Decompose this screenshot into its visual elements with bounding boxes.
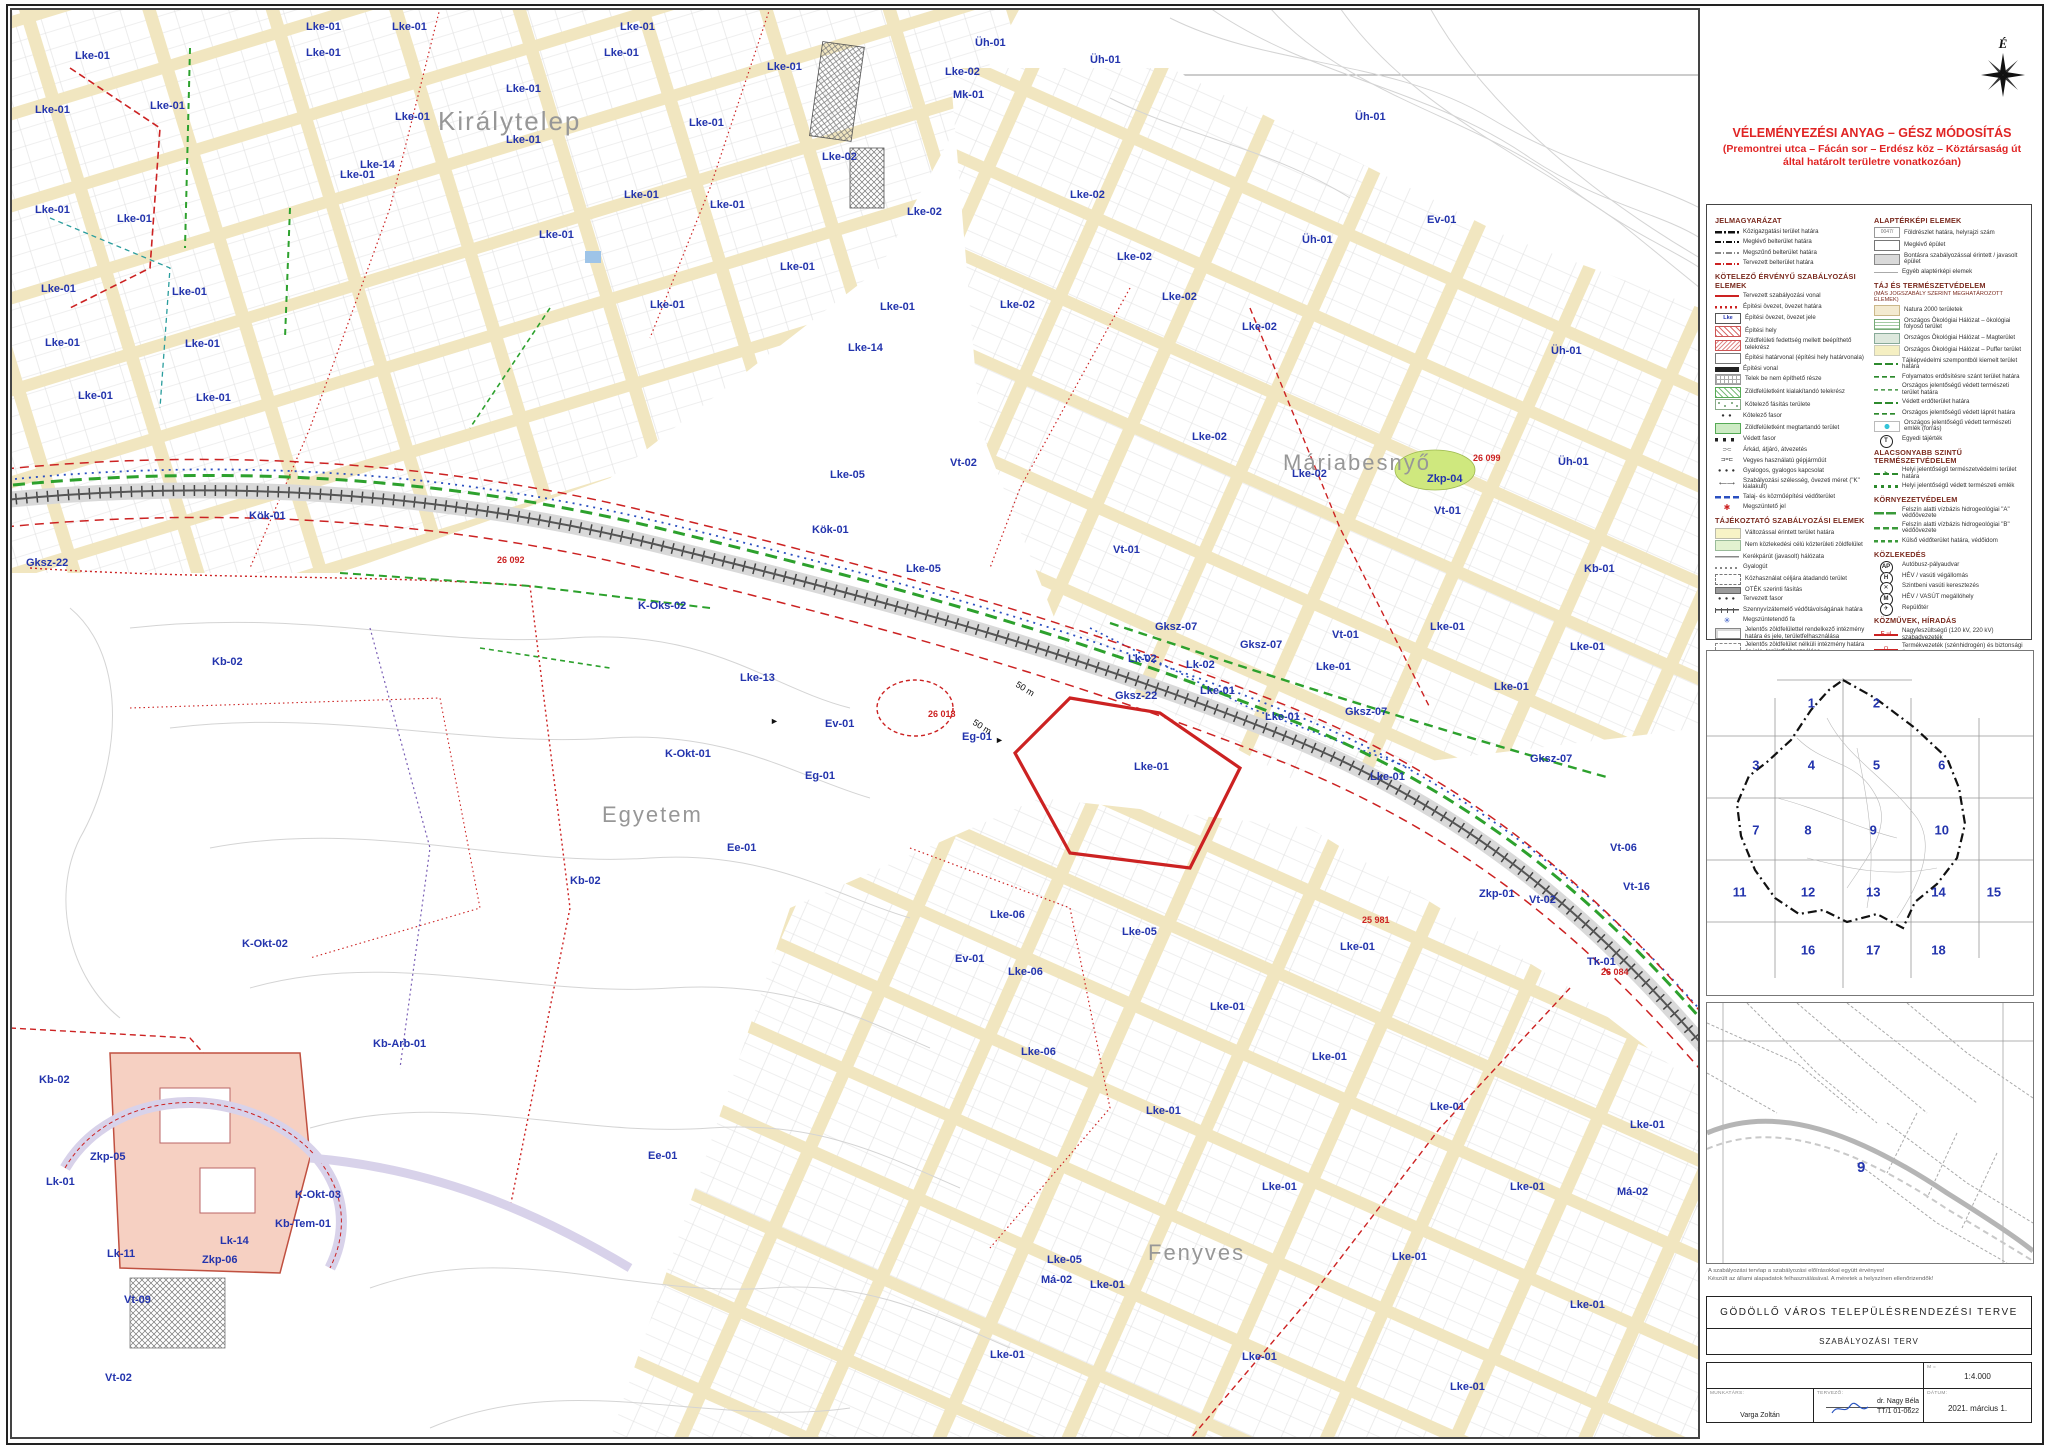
legend-swatch-icon (1874, 360, 1898, 369)
legend-item: ⟵⟶Szabályozási szélesség, övezeti méret … (1715, 478, 1866, 491)
legend-swatch-icon (1715, 292, 1739, 301)
legend-item-label: Meglévő belterület határa (1743, 239, 1812, 246)
legend-item: MHÉV / VASÚT megállóhely (1874, 593, 2025, 602)
zone-code-label: Gksz-07 (1530, 753, 1572, 765)
legend-item: Jelentős zöldfelülettel rendelkező intéz… (1715, 627, 1866, 640)
legend-item: Egyéb alaptérképi elemek (1874, 268, 2025, 277)
legend-item-label: Felszín alatti vízbázis hidrogeológiai "… (1902, 507, 2025, 520)
sheet-number-9: 9 (1870, 822, 1877, 837)
legend-swatch-icon (1715, 606, 1739, 615)
sheet-number-17: 17 (1866, 943, 1880, 958)
title-block: GÖDÖLLŐ VÁROS TELEPÜLÉSRENDEZÉSI TERVE S… (1706, 1296, 2032, 1423)
zone-code-label: Lke-02 (1292, 468, 1327, 480)
legend-swatch-icon: ● ● ● (1715, 595, 1739, 604)
zone-code-label: Lke-01 (78, 390, 113, 402)
scale-value: 1:4.000 (1928, 1372, 2027, 1381)
zone-code-label: Lke-01 (624, 189, 659, 201)
zone-code-label: Ev-01 (955, 953, 984, 965)
legend-item-label: HÉV / vasúti végállomás (1902, 573, 1968, 580)
zone-code-label: Üh-01 (975, 36, 1006, 49)
legend-swatch-icon (1874, 421, 1900, 432)
legend-swatch-icon (1715, 399, 1741, 410)
legend-swatch-icon (1715, 227, 1739, 236)
zone-code-label: Eg-01 (805, 770, 835, 782)
legend-section-title: KÖZLEKEDÉS (1874, 551, 2025, 559)
legend-item: ⊐=⊏Vegyes használatú gépjárműút (1715, 456, 1866, 465)
zone-code-label: Lke-13 (740, 672, 775, 684)
zone-code-label: Lke-05 (1122, 926, 1157, 938)
zone-code-label: Mk-01 (953, 89, 984, 101)
zone-code-label: Lke-06 (990, 909, 1025, 921)
zone-code-label: Kb-Arb-01 (373, 1038, 426, 1050)
zone-code-label: Lke-01 (506, 134, 541, 146)
legend-item-label: OTÉK szerinti fásítás (1745, 587, 1802, 594)
zone-code-label: Zkp-01 (1479, 888, 1514, 900)
zone-code-label: Gksz-07 (1240, 639, 1282, 651)
legend-item-label: Tervezett fasor (1743, 596, 1783, 603)
map-notes: A szabályozási tervlap a szabályozási el… (1708, 1268, 2030, 1284)
legend-section-subtitle: (MÁS JOGSZABÁLY SZERINT MEGHATÁROZOTT EL… (1874, 291, 2025, 303)
legend-item-label: Tervezett belterület határa (1743, 260, 1813, 267)
legend-item-label: Gyalogút (1743, 564, 1767, 571)
legend-item-label: Folyamatos erdősítésre szánt terület hat… (1902, 374, 2020, 381)
legend-swatch-icon: ⊐=⊏ (1715, 456, 1739, 465)
legend-swatch-icon (1874, 482, 1898, 491)
legend-item-label: Tervezett szabályozási vonal (1743, 293, 1821, 300)
signature-icon (1830, 1401, 1870, 1417)
zone-code-label: Kök-01 (249, 510, 286, 522)
legend-item: LkeÉpítési övezet, övezet jele (1715, 313, 1866, 324)
zone-code-label: Vt-01 (1434, 505, 1461, 517)
legend-item: ● ● ●Tervezett fasor (1715, 595, 1866, 604)
legend-item-label: Országos Ökológiai Hálózat – Magterület (1904, 335, 2015, 342)
legend-item: Országos Ökológiai Hálózat – Puffer terü… (1874, 345, 2025, 356)
legend-swatch-icon (1874, 386, 1898, 395)
legend-swatch-icon (1874, 268, 1898, 277)
legend-item-label: Szennyvízátemelő védőtávolságának határa (1743, 607, 1863, 614)
legend-item-label: Kötelező fasor (1743, 413, 1782, 420)
zone-code-label: Lke-14 (360, 159, 396, 171)
legend-swatch-icon (1715, 423, 1741, 434)
legend-item-label: Országos jelentőségű védett természeti e… (1904, 420, 2025, 433)
sheet-number-1: 1 (1808, 695, 1815, 710)
zone-code-label: Lke-01 (1210, 1001, 1245, 1013)
zone-code-label: Lke-01 (506, 83, 541, 95)
zone-code-label: Lke-02 (1000, 299, 1035, 311)
zone-code-label: Ev-01 (1427, 214, 1456, 226)
legend-item: Bontásra szabályozással érintett / javas… (1874, 253, 2025, 266)
legend-item: Kerékpárút (javasolt) hálózata (1715, 553, 1866, 562)
legend-swatch-icon (1715, 574, 1741, 585)
sheet-number-7: 7 (1752, 822, 1759, 837)
zone-code-label: Lk-02 (1128, 653, 1157, 665)
legend-item: Változással érintett terület határa (1715, 528, 1866, 539)
legend-swatch-icon (1874, 409, 1898, 418)
zone-code-label: Zkp-05 (90, 1151, 125, 1163)
legend-item: Szennyvízátemelő védőtávolságának határa (1715, 606, 1866, 615)
legend-swatch-icon (1715, 367, 1739, 372)
place-name-label: Királytelep (438, 106, 581, 136)
legend-swatch-icon (1874, 398, 1898, 407)
sheet9-key-map: 9 (1706, 1002, 2034, 1264)
zone-code-label: Kök-01 (812, 524, 849, 536)
contributor-name: Varga Zoltán (1711, 1412, 1809, 1419)
sheet-number-12: 12 (1801, 884, 1815, 899)
zone-code-label: Gksz-07 (1155, 621, 1197, 633)
legend-item: Tervezett belterület határa (1715, 259, 1866, 268)
sheet-index-map: 123456789101112131415161718 (1706, 650, 2034, 996)
legend-item: Országos Ökológiai Hálózat – Magterület (1874, 333, 2025, 344)
sheet-number-13: 13 (1866, 884, 1880, 899)
zone-code-label: Má-02 (1617, 1186, 1648, 1198)
zone-code-label: Lke-01 (689, 117, 724, 129)
legend-item-label: Autóbusz-pályaudvar (1902, 562, 1959, 569)
legend-item-label: Telek be nem építhető része (1745, 376, 1822, 383)
zone-code-label: Lke-01 (1430, 621, 1465, 633)
zone-code-label: Lke-01 (1570, 641, 1605, 653)
zone-code-label: Lke-01 (767, 61, 802, 73)
legend-item-label: Változással érintett terület határa (1745, 530, 1834, 537)
legend-swatch-icon: ✳ (1715, 616, 1739, 625)
legend-item: Védett fasor (1715, 435, 1866, 444)
zone-code-label: Lke-05 (906, 563, 941, 575)
annotation-label: ► (770, 716, 779, 726)
zone-code-label: Lk-01 (46, 1176, 75, 1188)
zone-code-label: Lke-01 (1242, 1351, 1277, 1363)
sheet-number-15: 15 (1987, 884, 2001, 899)
legend-item: Felszín alatti vízbázis hidrogeológiai "… (1874, 507, 2025, 520)
legend-item-label: Megszüntető jel (1743, 504, 1786, 511)
legend-item-label: Tájképvédelmi szempontból kiemelt terüle… (1902, 358, 2025, 371)
legend-item: Országos jelentőségű védett természeti t… (1874, 383, 2025, 396)
castle-block (110, 1053, 310, 1273)
legend-swatch-icon: ✕ (1874, 582, 1898, 591)
zone-code-label: Ee-01 (648, 1150, 677, 1162)
legend-item-label: Zöldfelületként kialakítandó telekrész (1745, 389, 1845, 396)
scale-cell: M = 1:4.000 (1924, 1363, 2031, 1389)
legend-swatch-icon: ● ● ● (1715, 467, 1739, 476)
plan-sheet: { "title": { "line1": "VÉLEMÉNYEZÉSI ANY… (0, 0, 2048, 1447)
zone-code-label: K-Okt-02 (242, 938, 288, 950)
legend-swatch-icon (1715, 540, 1741, 551)
place-name-label: Egyetem (602, 802, 703, 827)
legend-item: Védett erdőterület határa (1874, 398, 2025, 407)
zoning-map-canvas: KirálytelepMáriabesnyőEgyetemFenyves Lke… (10, 8, 1700, 1439)
legend-item-label: Kerékpárút (javasolt) hálózata (1743, 554, 1824, 561)
zone-code-label: Lke-01 (1200, 685, 1235, 697)
legend-item: Talaj- és közműépítési védőterület (1715, 493, 1866, 502)
legend-item-label: Országos jelentőségű védett természeti t… (1902, 383, 2025, 396)
legend-swatch-icon (1874, 537, 1898, 546)
legend-swatch-icon (1874, 345, 1900, 356)
sheet-number-16: 16 (1801, 943, 1815, 958)
sheet-number-18: 18 (1931, 943, 1945, 958)
legend-swatch-icon (1874, 305, 1900, 316)
legend-item-label: Építési övezet, övezet jele (1745, 315, 1816, 322)
zone-code-label: Lke-02 (945, 66, 980, 78)
zone-code-label: Lke-01 (117, 213, 152, 225)
legend-item: Telek be nem építhető része (1715, 374, 1866, 385)
zone-code-label: Üh-01 (1302, 233, 1333, 246)
date-cell: DÁTUM: 2021. március 1. (1924, 1389, 2031, 1422)
legend-swatch-icon (1715, 340, 1741, 351)
north-arrow: É (1980, 36, 2026, 103)
legend-item: ✕Szintbeni vasúti keresztezés (1874, 582, 2025, 591)
zone-code-label: Lke-01 (1312, 1051, 1347, 1063)
annotation-label: ► (995, 735, 1004, 745)
legend-item-label: Jelentős zöldfelülettel rendelkező intéz… (1745, 627, 1866, 640)
zone-code-label: K-Okt-01 (665, 748, 711, 760)
legend-item: Natura 2000 területek (1874, 305, 2025, 316)
zone-code-label: Vt-01 (1332, 629, 1359, 641)
legend-item: ✈Repülőtér (1874, 603, 2025, 612)
legend-item-label: Szabályozási szélesség, övezeti méret ("… (1743, 478, 1866, 491)
legend-item: Közhasználat céljára átadandó terület (1715, 574, 1866, 585)
zone-code-label: Lke-01 (1510, 1181, 1545, 1193)
legend-item: ✳Megszüntetendő fa (1715, 616, 1866, 625)
zone-code-label: Kb-02 (212, 656, 243, 668)
legend-item: ⊃⊂Árkád, átjáró, átvezetés (1715, 446, 1866, 455)
zone-code-label: Gksz-22 (1115, 690, 1157, 702)
parcel-number-label: 26 092 (497, 555, 525, 565)
legend-item-label: Országos Ökológiai Hálózat – ökológiai f… (1904, 318, 2025, 331)
legend-item: Gyalogút (1715, 563, 1866, 572)
legend-item: ● ● ●Gyalogos, gyalogos kapcsolat (1715, 467, 1866, 476)
zone-code-label: Lk-14 (220, 1235, 250, 1247)
legend-swatch-icon (1874, 373, 1898, 382)
zone-code-label: Lke-01 (1146, 1105, 1181, 1117)
legend-item: HHÉV / vasúti végállomás (1874, 572, 2025, 581)
legend-swatch-icon (1715, 303, 1739, 312)
zone-code-label: Gksz-07 (1345, 706, 1387, 718)
legend-item-label: Gyalogos, gyalogos kapcsolat (1743, 468, 1824, 475)
legend-item-label: Zöldfelületként megtartandó terület (1745, 425, 1839, 432)
zone-code-label: Ee-01 (727, 842, 756, 854)
zone-code-label: Zkp-06 (202, 1254, 237, 1266)
legend-item: Nem közlekedési célú közterületi zöldfel… (1715, 540, 1866, 551)
legend-item-label: Nem közlekedési célú közterületi zöldfel… (1745, 542, 1863, 549)
zone-code-label: Lke-02 (1162, 291, 1197, 303)
legend-swatch-icon (1715, 374, 1741, 385)
legend-item: ● ●Kötelező fasor (1715, 412, 1866, 421)
legend-swatch-icon (1874, 524, 1898, 533)
legend-item-label: Védett fasor (1743, 436, 1776, 443)
legend: JELMAGYARÁZATKözigazgatási terület határ… (1706, 204, 2032, 640)
zone-code-label: Lke-02 (1242, 321, 1277, 333)
legend-item: Meglévő belterület határa (1715, 238, 1866, 247)
map-note-line1: A szabályozási tervlap a szabályozási el… (1708, 1268, 2030, 1276)
zone-code-label: Zkp-04 (1427, 473, 1463, 485)
title-block-main: GÖDÖLLŐ VÁROS TELEPÜLÉSRENDEZÉSI TERVE (1707, 1297, 2031, 1329)
legend-swatch-icon (1715, 353, 1741, 364)
legend-item-label: Zöldfelületi fedettség mellett beépíthet… (1745, 338, 1866, 351)
legend-item: Felszín alatti vízbázis hidrogeológiai "… (1874, 522, 2025, 535)
legend-swatch-icon: ✈ (1874, 603, 1898, 612)
plan-title-line1: VÉLEMÉNYEZÉSI ANYAG – GÉSZ MÓDOSÍTÁS (1704, 126, 2040, 140)
legend-item: Helyi jelentőségű védett természeti emlé… (1874, 482, 2025, 491)
zone-code-label: Lke-01 (172, 286, 207, 298)
zone-code-label: Lke-01 (1262, 1181, 1297, 1193)
zone-code-label: Lke-01 (1340, 941, 1375, 953)
zone-code-label: Má-02 (1041, 1274, 1072, 1286)
sheet-number-8: 8 (1804, 822, 1811, 837)
zone-code-label: Lke-01 (306, 21, 341, 33)
zone-code-label: Üh-01 (1355, 110, 1386, 123)
legend-swatch-icon (1715, 435, 1739, 444)
pond (585, 251, 601, 263)
legend-column-right: ALAPTÉRKÉPI ELEMEK0047/Földrészlet határ… (1874, 212, 2025, 635)
sheet-number-6: 6 (1938, 757, 1945, 772)
zone-code-label: Lke-01 (539, 229, 574, 241)
zone-code-label: Lke-14 (848, 342, 884, 354)
legend-item: Tájképvédelmi szempontból kiemelt terüle… (1874, 358, 2025, 371)
zone-code-label: Lke-01 (1370, 771, 1405, 783)
legend-item-label: Megszűnő belterület határa (1743, 250, 1817, 257)
legend-item-label: Egyéb alaptérképi elemek (1902, 269, 1972, 276)
legend-item-label: Talaj- és közműépítési védőterület (1743, 494, 1835, 501)
legend-swatch-icon: ⟵⟶ (1715, 480, 1739, 489)
legend-swatch-icon (1715, 326, 1741, 337)
zone-code-label: Lke-01 (45, 337, 80, 349)
designer-label: TERVEZŐ: (1817, 1391, 1843, 1396)
legend-item-label: Kötelező fásítás területe (1745, 402, 1810, 409)
legend-item-label: Országos jelentőségű védett láprét határ… (1902, 410, 2015, 417)
map-note-line2: Készült az állami alapadatok felhasználá… (1708, 1276, 2030, 1284)
zone-code-label: Lke-01 (75, 50, 110, 62)
zone-code-label: Lke-01 (395, 111, 430, 123)
legend-column-left: JELMAGYARÁZATKözigazgatási terület határ… (1715, 212, 1866, 635)
legend-swatch-icon (1715, 238, 1739, 247)
legend-item: Országos jelentőségű védett láprét határ… (1874, 409, 2025, 418)
zone-code-label: Lk-02 (1186, 659, 1215, 671)
legend-item: Zöldfelületként megtartandó terület (1715, 423, 1866, 434)
designer-cell: TERVEZŐ: dr. Nagy Béla TT/1 01-0622 (1814, 1389, 1924, 1422)
zone-code-label: Lke-01 (35, 104, 70, 116)
zone-code-label: Lke-01 (1494, 681, 1529, 693)
legend-swatch-icon (1715, 528, 1741, 539)
zone-code-label: Lke-01 (1316, 661, 1351, 673)
zone-code-label: Vt-06 (1610, 842, 1637, 854)
zone-code-label: Vt-02 (950, 457, 977, 469)
zone-code-label: Lke-01 (41, 283, 76, 295)
legend-item: Közigazgatási terület határa (1715, 227, 1866, 236)
legend-section-title: KÖRNYEZETVÉDELEM (1874, 496, 2025, 504)
zone-code-label: Lke-01 (1134, 761, 1169, 773)
zone-code-label: Lke-02 (1117, 251, 1152, 263)
sheet-number-10: 10 (1934, 822, 1948, 837)
zone-code-label: Lke-01 (1630, 1119, 1665, 1131)
legend-swatch-icon (1715, 628, 1741, 639)
legend-swatch-icon: AP (1874, 561, 1898, 570)
legend-section-title: KÖZMŰVEK, HÍRADÁS (1874, 617, 2025, 625)
legend-item-label: HÉV / VASÚT megállóhely (1902, 594, 1974, 601)
legend-item: ✱Megszüntető jel (1715, 503, 1866, 512)
zone-code-label: Lke-05 (830, 469, 865, 481)
parcel-number-label: 26 084 (1601, 967, 1629, 977)
zone-code-label: Lke-01 (990, 1349, 1025, 1361)
place-name-label: Fenyves (1148, 1240, 1245, 1265)
zone-code-label: Lke-01 (880, 301, 915, 313)
zone-code-label: Lke-01 (620, 21, 655, 33)
date-label: DÁTUM: (1927, 1391, 1947, 1396)
legend-item-label: Közhasználat céljára átadandó terület (1745, 576, 1847, 583)
zone-code-label: Lke-01 (1570, 1299, 1605, 1311)
legend-swatch-icon (1715, 493, 1739, 502)
legend-item: TEgyedi tájérték (1874, 435, 2025, 444)
zone-code-label: Lke-06 (1021, 1046, 1056, 1058)
sheet-number-14: 14 (1931, 884, 1945, 899)
legend-section-title: ALACSONYABB SZINTŰ TERMÉSZETVÉDELEM (1874, 449, 2025, 466)
legend-item: Építési övezet, övezet határa (1715, 303, 1866, 312)
zone-code-label: Lke-01 (780, 261, 815, 273)
contributor-cell: MUNKATÁRS: Varga Zoltán (1707, 1389, 1814, 1422)
zoning-map: KirálytelepMáriabesnyőEgyetemFenyves Lke… (10, 8, 1700, 1439)
compass-rose-icon (1980, 52, 2026, 98)
parcel-number-label: 25 981 (1362, 915, 1390, 925)
date-value: 2021. március 1. (1948, 1404, 2007, 1413)
legend-item: Országos Ökológiai Hálózat – ökológiai f… (1874, 318, 2025, 331)
legend-item: APAutóbusz-pályaudvar (1874, 561, 2025, 570)
zone-code-label: Vt-02 (1529, 894, 1556, 906)
legend-item-label: Helyi jelentőségű védett természeti emlé… (1902, 483, 2014, 490)
zone-code-label: Ev-01 (825, 718, 854, 730)
legend-swatch-icon: ✱ (1715, 503, 1739, 512)
zone-code-label: Üh-01 (1090, 53, 1121, 66)
sheet-number-11: 11 (1733, 884, 1747, 899)
legend-item: OTÉK szerinti fásítás (1715, 587, 1866, 594)
legend-item-label: Bontásra szabályozással érintett / javas… (1904, 253, 2025, 266)
scale-label: M = (1927, 1365, 1936, 1370)
zone-code-label: Lke-02 (1070, 189, 1105, 201)
legend-item-label: Építési határvonal (építési hely határvo… (1745, 355, 1864, 362)
legend-swatch-icon: Lke (1715, 313, 1741, 324)
legend-swatch-icon (1874, 509, 1898, 518)
sheet-number-5: 5 (1873, 757, 1880, 772)
parcel-number-label: 26 099 (1473, 453, 1501, 463)
legend-item-label: Külső védőterület határa, védőidom (1902, 538, 1998, 545)
zone-code-label: Lke-05 (1047, 1254, 1082, 1266)
zone-code-label: Lke-02 (907, 206, 942, 218)
legend-swatch-icon: H (1874, 572, 1898, 581)
legend-swatch-icon: E ⊣ (1874, 630, 1898, 639)
legend-item: hHelyi jelentőségű természetvédelmi terü… (1874, 467, 2025, 480)
legend-item: Zöldfelületi fedettség mellett beépíthet… (1715, 338, 1866, 351)
parcel-number-label: 26 018 (928, 709, 956, 719)
plan-title: VÉLEMÉNYEZÉSI ANYAG – GÉSZ MÓDOSÍTÁS (Pr… (1704, 126, 2040, 169)
zone-code-label: Lke-01 (35, 204, 70, 216)
legend-item-label: Egyedi tájérték (1902, 436, 1942, 443)
legend-item: E ⊣Nagyfeszültségű (120 kV, 220 kV) szab… (1874, 628, 2025, 641)
zone-code-label: Kb-02 (39, 1074, 70, 1086)
zone-code-label: Lke-01 (1450, 1381, 1485, 1393)
legend-item: Építési határvonal (építési hely határvo… (1715, 353, 1866, 364)
zone-code-label: Kb-Tem-01 (275, 1218, 331, 1230)
legend-item: Építési vonal (1715, 366, 1866, 373)
plan-title-line3: által határolt területre vonatkozóan) (1704, 156, 2040, 169)
contributor-label: MUNKATÁRS: (1710, 1391, 1744, 1396)
zone-code-label: Lke-01 (650, 299, 685, 311)
zone-code-label: Lke-02 (822, 151, 857, 163)
legend-swatch-icon (1874, 319, 1900, 330)
legend-item-label: Földrészlet határa, helyrajzi szám (1904, 230, 1995, 237)
legend-item-label: Védett erdőterület határa (1902, 399, 1969, 406)
zone-code-label: Lke-01 (150, 100, 185, 112)
sidebar: É VÉLEMÉNYEZÉSI ANYAG – GÉSZ MÓDOSÍTÁS (… (1704, 8, 2040, 1439)
north-label: É (1980, 36, 2026, 52)
legend-swatch-icon: h (1874, 470, 1898, 479)
legend-item: Külső védőterület határa, védőidom (1874, 537, 2025, 546)
legend-section-title: KÖTELEZŐ ÉRVÉNYŰ SZABÁLYOZÁSI ELEMEK (1715, 273, 1866, 290)
